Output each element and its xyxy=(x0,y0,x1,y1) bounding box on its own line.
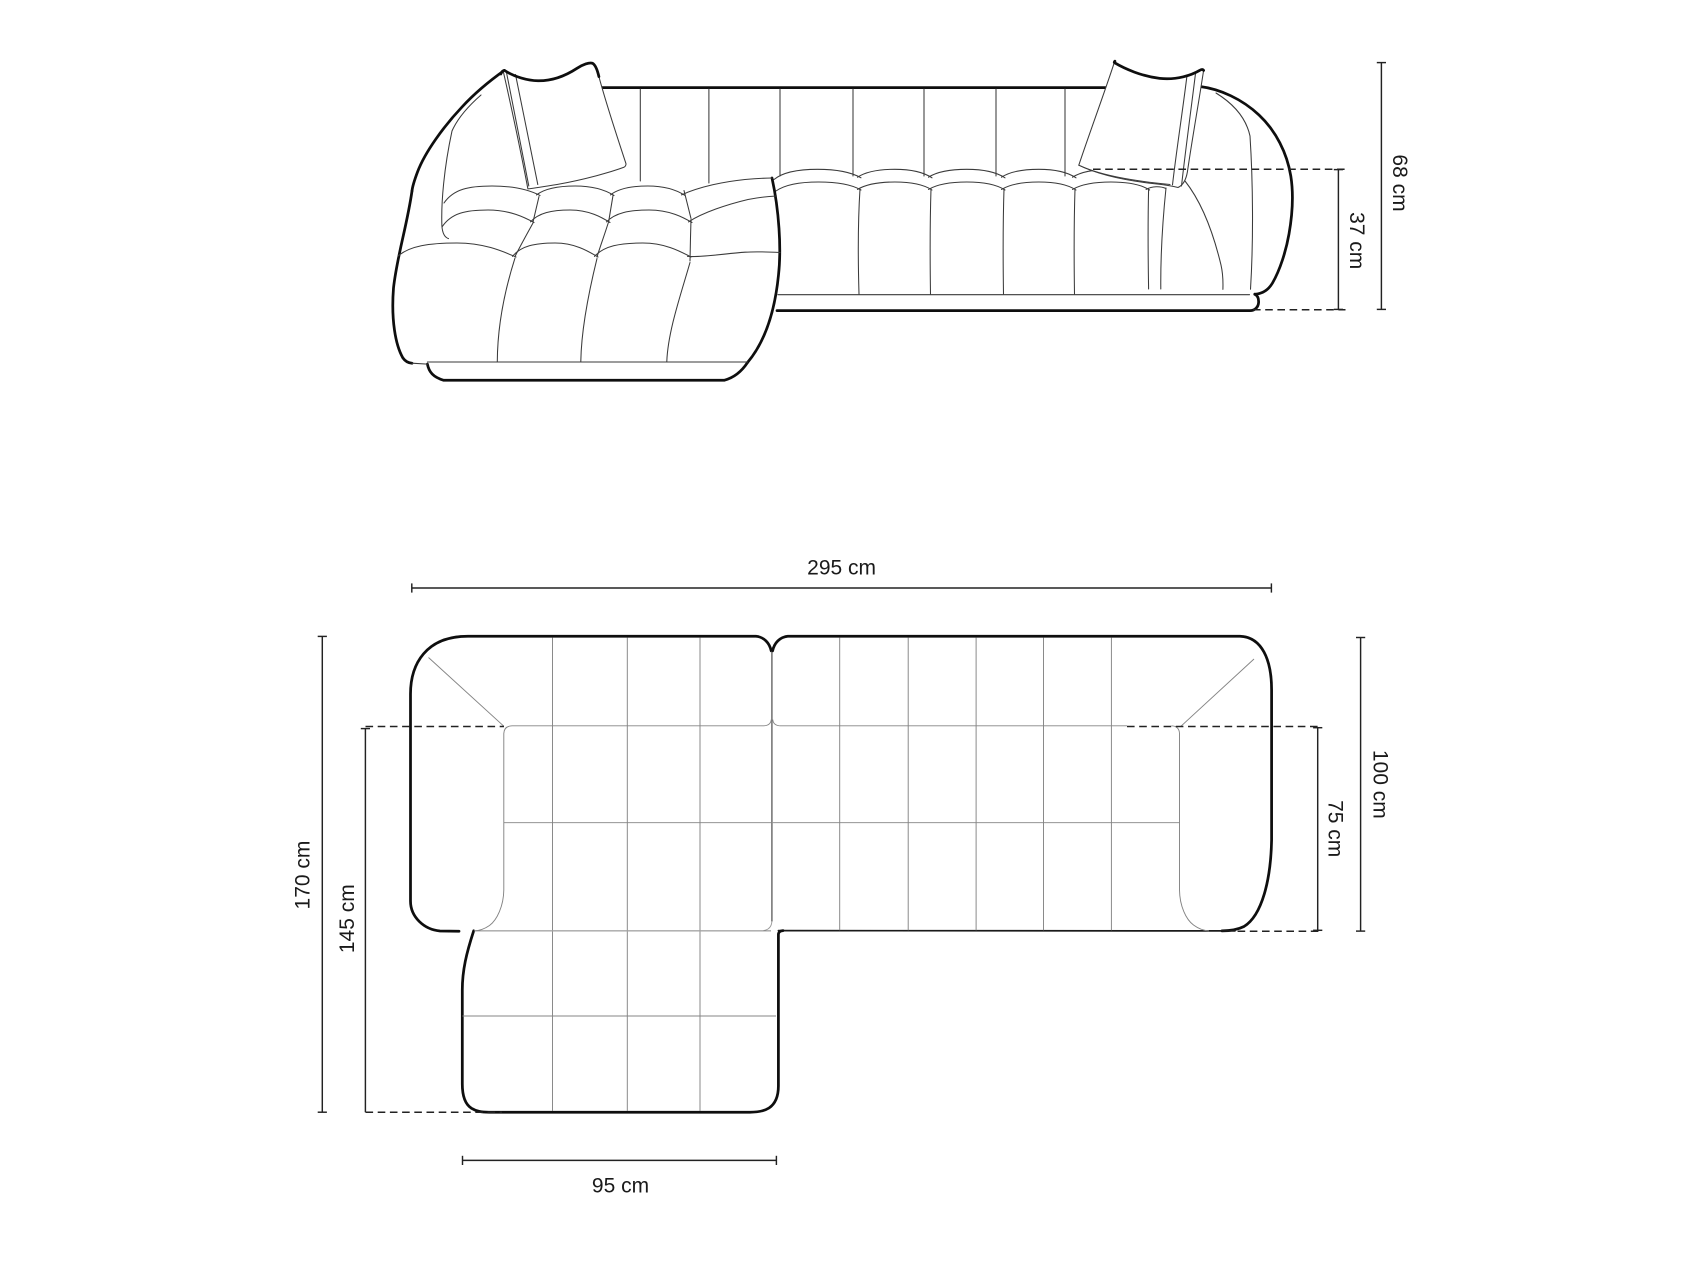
svg-text:37 cm: 37 cm xyxy=(1345,212,1368,269)
svg-text:100 cm: 100 cm xyxy=(1368,750,1391,819)
svg-text:170 cm: 170 cm xyxy=(292,841,315,910)
svg-text:68 cm: 68 cm xyxy=(1388,154,1411,211)
svg-text:295 cm: 295 cm xyxy=(807,557,876,580)
svg-text:75 cm: 75 cm xyxy=(1323,800,1346,857)
svg-text:145 cm: 145 cm xyxy=(336,884,359,953)
svg-text:95 cm: 95 cm xyxy=(592,1175,649,1198)
